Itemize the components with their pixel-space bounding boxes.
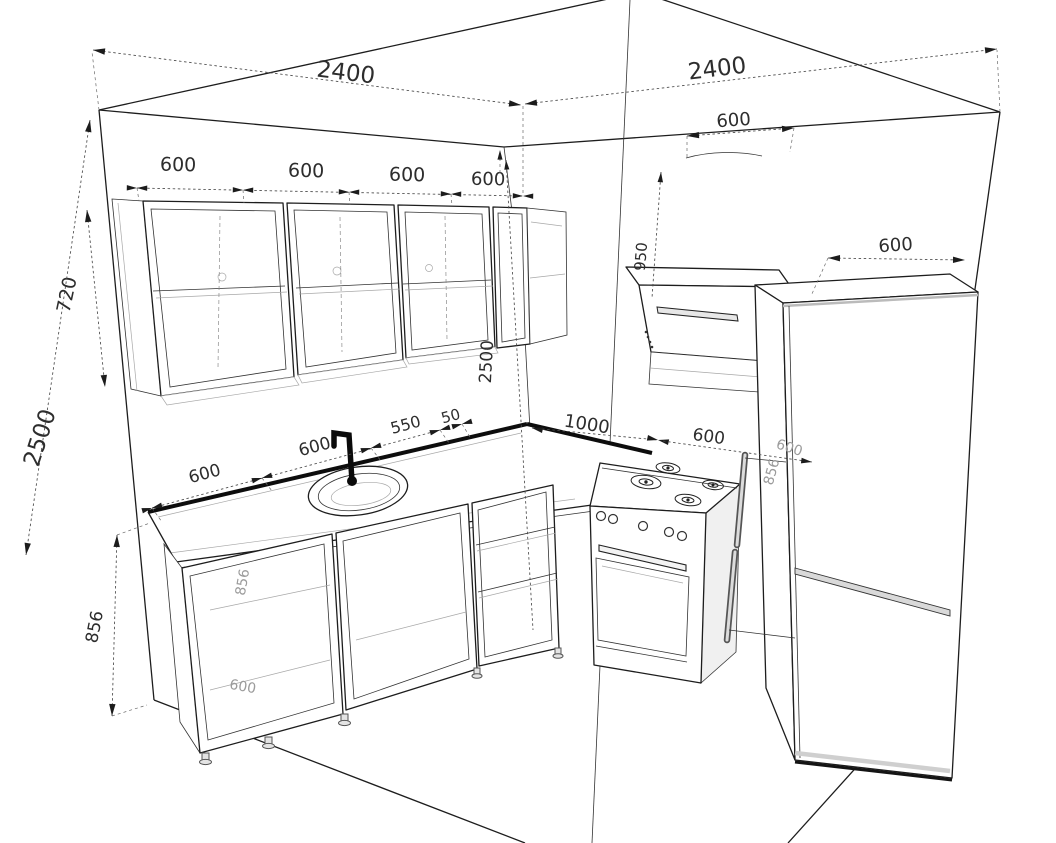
dim-upper-cab-3: 600	[389, 164, 426, 187]
shelf-pin-hole	[333, 267, 341, 275]
dim-line-fridge-width	[828, 258, 965, 260]
base-cabinet-2	[336, 504, 477, 710]
dim-counter-seg-2: 600	[296, 433, 333, 461]
dim-upper-cab-height: 720	[53, 275, 82, 315]
dim-upper-cab-1: 600	[160, 154, 197, 177]
gas-stove	[590, 461, 740, 683]
dim-counter-seg-1: 600	[186, 460, 223, 488]
faucet-base	[347, 476, 357, 486]
upper-cabinet-2	[287, 203, 407, 383]
dim-line-upper-height	[87, 210, 105, 387]
dim-line-base-height	[112, 535, 117, 716]
dim-stove-width: 600	[691, 425, 726, 449]
upper-cabinets	[112, 199, 567, 405]
fridge-front	[783, 292, 978, 778]
dim-wall-height-left: 2500	[19, 406, 62, 470]
ceiling-edge-left	[99, 0, 640, 110]
left-wall-top-edge	[99, 110, 504, 147]
kitchen-drawing-canvas: 856 600	[0, 0, 1056, 843]
dim-line-right-wall-total	[525, 49, 997, 104]
right-wall-top-edge	[504, 112, 1000, 147]
wall-vent	[686, 152, 762, 158]
dim-upper-cab-2: 600	[288, 160, 325, 183]
base-cabinet-1: 856 600	[164, 534, 343, 753]
base-cabinet-3	[472, 485, 559, 666]
kitchen-drawing: 856 600	[0, 0, 1056, 843]
upper-cabinet-4-corner	[493, 207, 567, 348]
upper-cabinet-1	[112, 199, 299, 405]
dim-wall-height-corner: 2500	[476, 340, 498, 384]
dim-right-wall-total: 2400	[687, 53, 748, 86]
ceiling-edge-right	[640, 0, 1000, 112]
dim-fridge-width: 600	[878, 234, 914, 257]
fridge	[727, 274, 978, 780]
dim-base-height: 856	[82, 609, 108, 645]
shelf-pin-hole	[426, 265, 433, 272]
dim-hood-clearance: 950	[631, 242, 651, 272]
dim-hood-width: 600	[716, 109, 752, 132]
dim-line-upper-chain	[137, 188, 523, 196]
dim-counter-seg-4: 50	[439, 405, 462, 427]
dim-line-wall-height-left	[26, 120, 90, 555]
dim-counter-seg-3: 550	[388, 412, 422, 438]
left-wall-left-edge	[99, 110, 154, 700]
dim-left-wall-total: 2400	[315, 57, 376, 90]
